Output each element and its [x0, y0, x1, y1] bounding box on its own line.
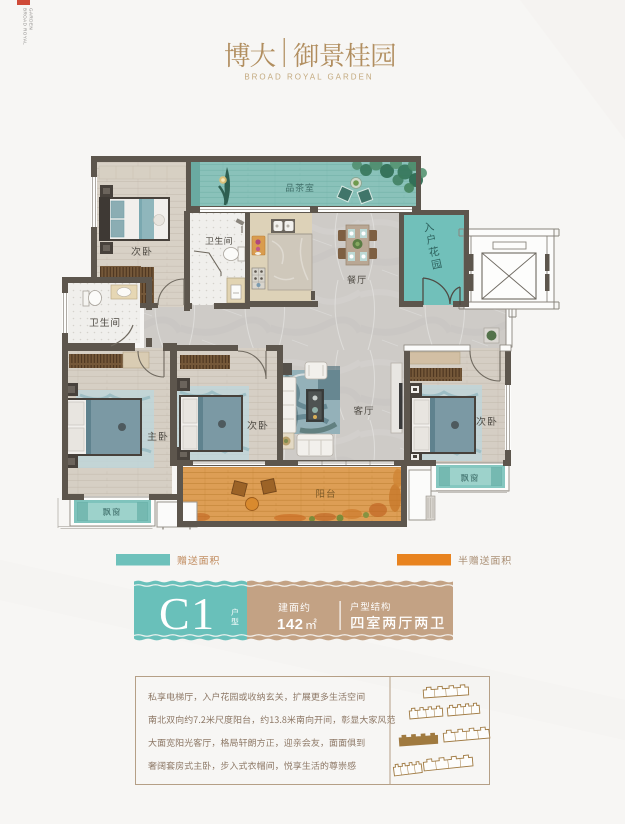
- svg-text:142: 142: [277, 616, 304, 633]
- svg-text:GARDEN: GARDEN: [29, 8, 34, 30]
- svg-text:C1: C1: [159, 588, 216, 639]
- svg-text:BROAD ROYAL: BROAD ROYAL: [23, 8, 28, 45]
- svg-text:BROAD ROYAL GARDEN: BROAD ROYAL GARDEN: [244, 73, 373, 82]
